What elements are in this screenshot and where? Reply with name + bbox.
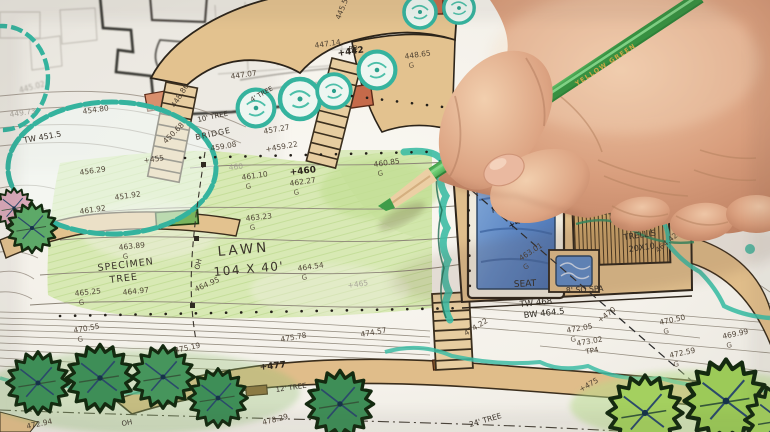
dark-tree xyxy=(66,344,133,411)
g-mark: G xyxy=(293,188,299,197)
photo-landscape-plan: { "photo": { "description_title": "", "p… xyxy=(0,0,770,432)
photo-canvas: LAWN 104 X 40' SPECIMEN TREE BRIDGE TREL… xyxy=(0,0,770,432)
g-mark: G xyxy=(245,182,251,191)
dark-tree xyxy=(132,346,195,409)
shrub xyxy=(280,79,320,119)
g-mark: G xyxy=(377,169,383,178)
g-mark: G xyxy=(249,223,255,232)
g-mark: G xyxy=(78,298,84,307)
shrub xyxy=(317,74,351,108)
grade-label: 460 xyxy=(228,162,243,172)
g-mark: G xyxy=(408,61,414,70)
g-mark: G xyxy=(301,273,307,282)
shrub xyxy=(359,52,396,89)
g-mark: G xyxy=(122,252,128,261)
